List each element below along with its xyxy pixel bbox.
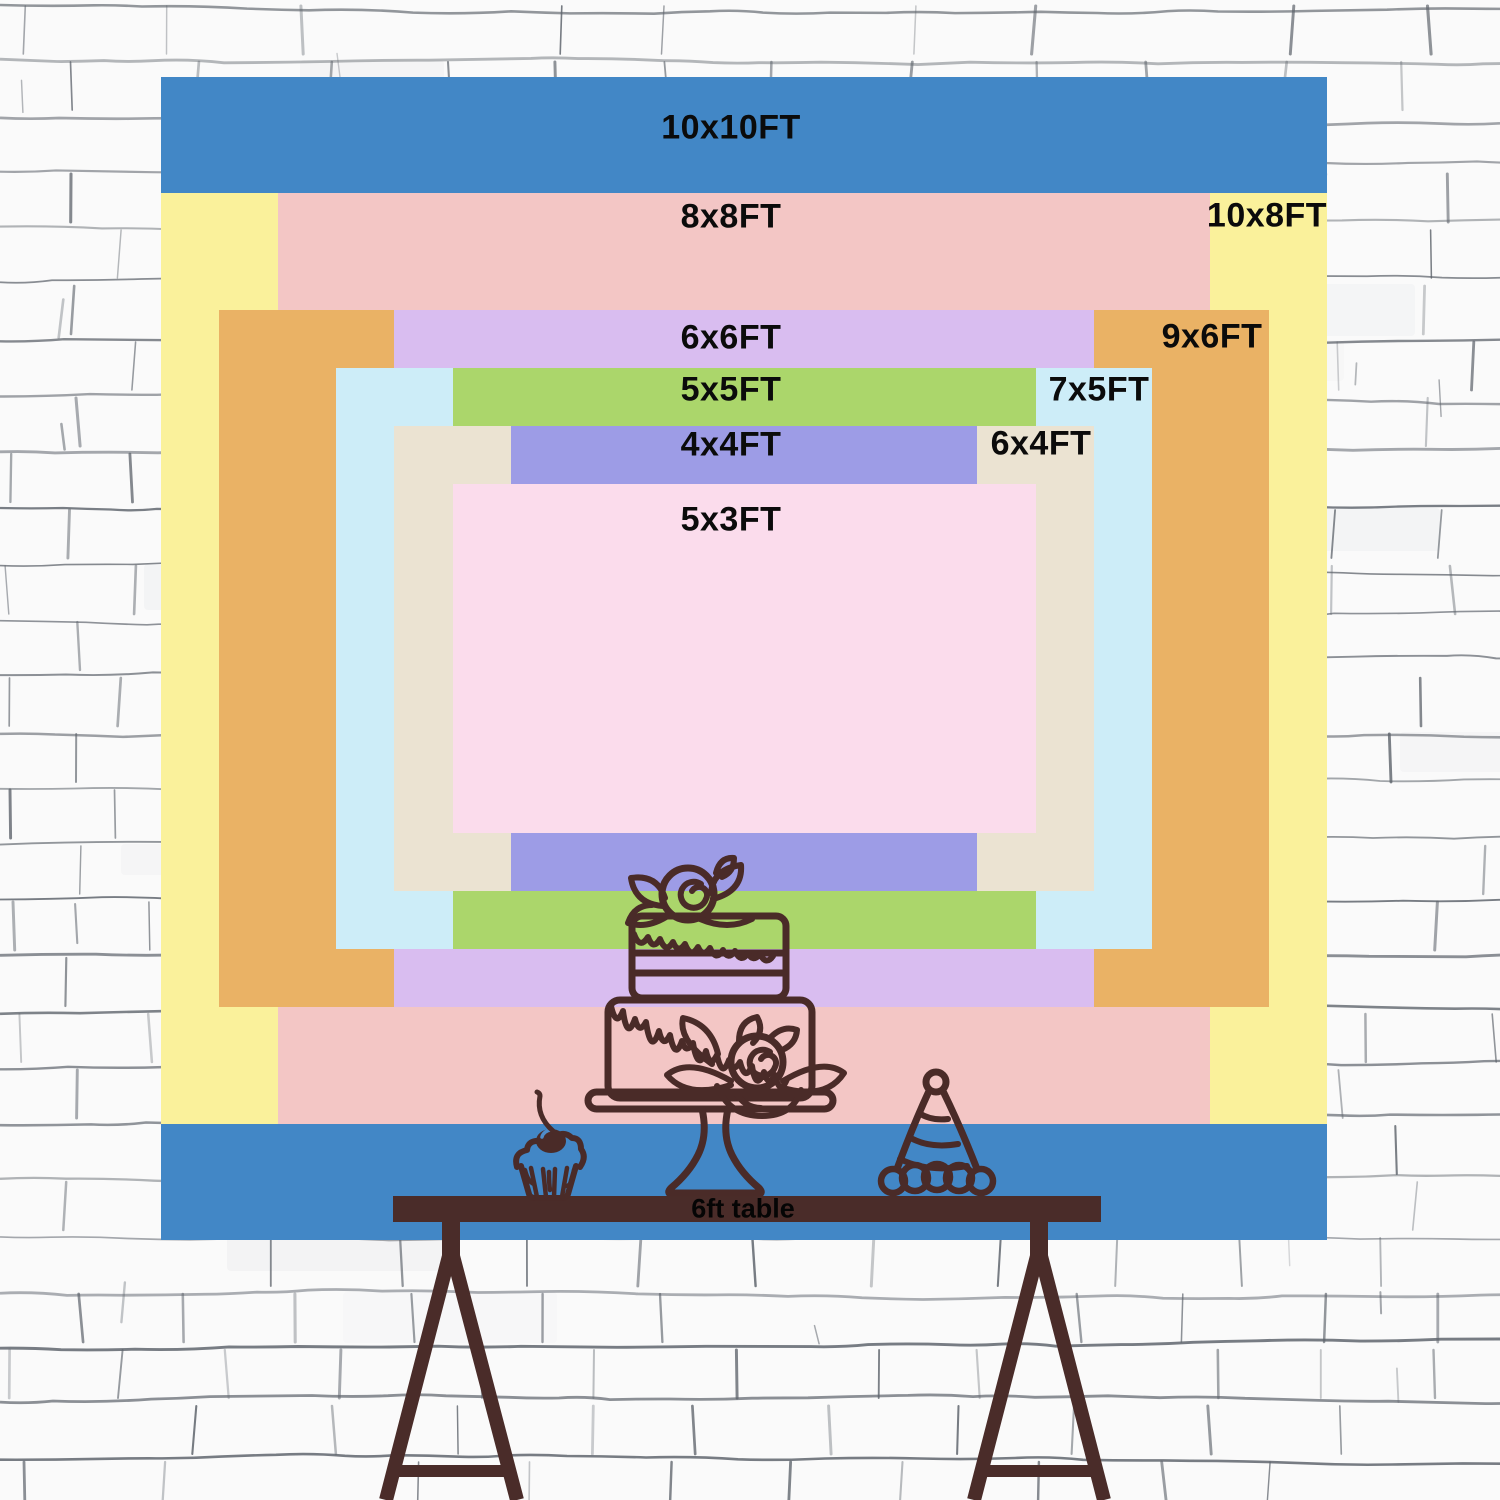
cupcake-cherry-stem xyxy=(537,1092,553,1131)
party-hat-doodle xyxy=(881,1072,993,1193)
trestle-table xyxy=(386,1196,1104,1500)
cake-top-icing-drip xyxy=(634,934,773,961)
table-left-legs xyxy=(386,1256,517,1500)
cake-stand-pedestal xyxy=(669,1109,762,1193)
cupcake-cherry xyxy=(536,1129,566,1153)
cupcake-doodle xyxy=(516,1092,584,1198)
backdrop-size-chart-scene: 10x10FT10x8FT8x8FT9x6FT6x6FT7x5FT5x5FT6x… xyxy=(0,0,1500,1500)
table-right-legs xyxy=(974,1256,1104,1500)
doodle-layer xyxy=(0,0,1500,1500)
party-hat-cone xyxy=(897,1091,977,1169)
cake-top-rose-spiral xyxy=(681,882,707,908)
table-size-label: 6ft table xyxy=(691,1194,795,1225)
birthday-cake-doodle xyxy=(588,858,844,1193)
